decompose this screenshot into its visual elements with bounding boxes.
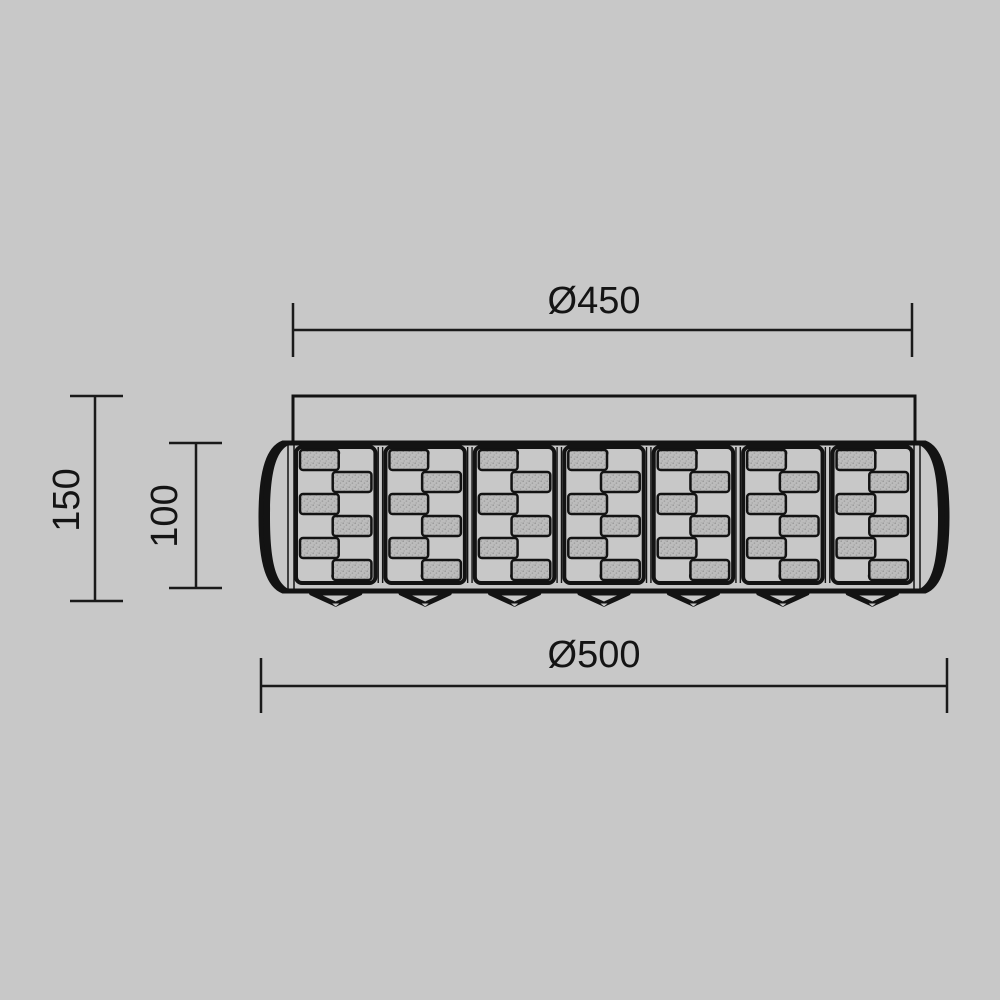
dimension-drawing-canvas: Ø450 Ø500 150 100 (0, 0, 1000, 1000)
crystal-brick (479, 538, 518, 558)
crystal-brick (780, 472, 819, 492)
crystal-brick (422, 560, 461, 580)
crystal-brick (389, 494, 428, 514)
crystal-brick (512, 472, 551, 492)
crystal-brick (869, 560, 908, 580)
crystal-brick (568, 538, 607, 558)
crystal-brick (512, 560, 551, 580)
crystal-brick (300, 494, 339, 514)
dim-label-bottom-width: Ø500 (548, 634, 641, 676)
crystal-brick (479, 450, 518, 470)
crystal-brick (389, 450, 428, 470)
crystal-brick (333, 560, 372, 580)
crystal-brick (869, 516, 908, 536)
crystal-brick (601, 516, 640, 536)
lamp-dimension-diagram: Ø450 Ø500 150 100 (0, 0, 1000, 1000)
crystal-brick (601, 472, 640, 492)
crystal-brick (690, 516, 729, 536)
crystal-brick (568, 494, 607, 514)
crystal-brick (747, 538, 786, 558)
crystal-brick (601, 560, 640, 580)
crystal-brick (747, 494, 786, 514)
crystal-brick (837, 450, 876, 470)
crystal-brick (333, 516, 372, 536)
crystal-brick (300, 538, 339, 558)
crystal-brick (747, 450, 786, 470)
crystal-brick (300, 450, 339, 470)
crystal-brick (422, 516, 461, 536)
crystal-brick (780, 516, 819, 536)
crystal-brick (690, 560, 729, 580)
crystal-brick (869, 472, 908, 492)
crystal-brick (690, 472, 729, 492)
crystal-brick (837, 538, 876, 558)
crystal-brick (333, 472, 372, 492)
crystal-brick (568, 450, 607, 470)
dim-label-top-width: Ø450 (548, 280, 641, 322)
crystal-brick (780, 560, 819, 580)
crystal-brick (837, 494, 876, 514)
crystal-brick (658, 538, 697, 558)
dim-label-body-height: 100 (144, 484, 186, 547)
dim-label-overall-height: 150 (46, 468, 88, 531)
crystal-brick (658, 450, 697, 470)
crystal-brick (389, 538, 428, 558)
crystal-brick (658, 494, 697, 514)
crystal-brick (479, 494, 518, 514)
crystal-brick (512, 516, 551, 536)
crystal-brick (422, 472, 461, 492)
